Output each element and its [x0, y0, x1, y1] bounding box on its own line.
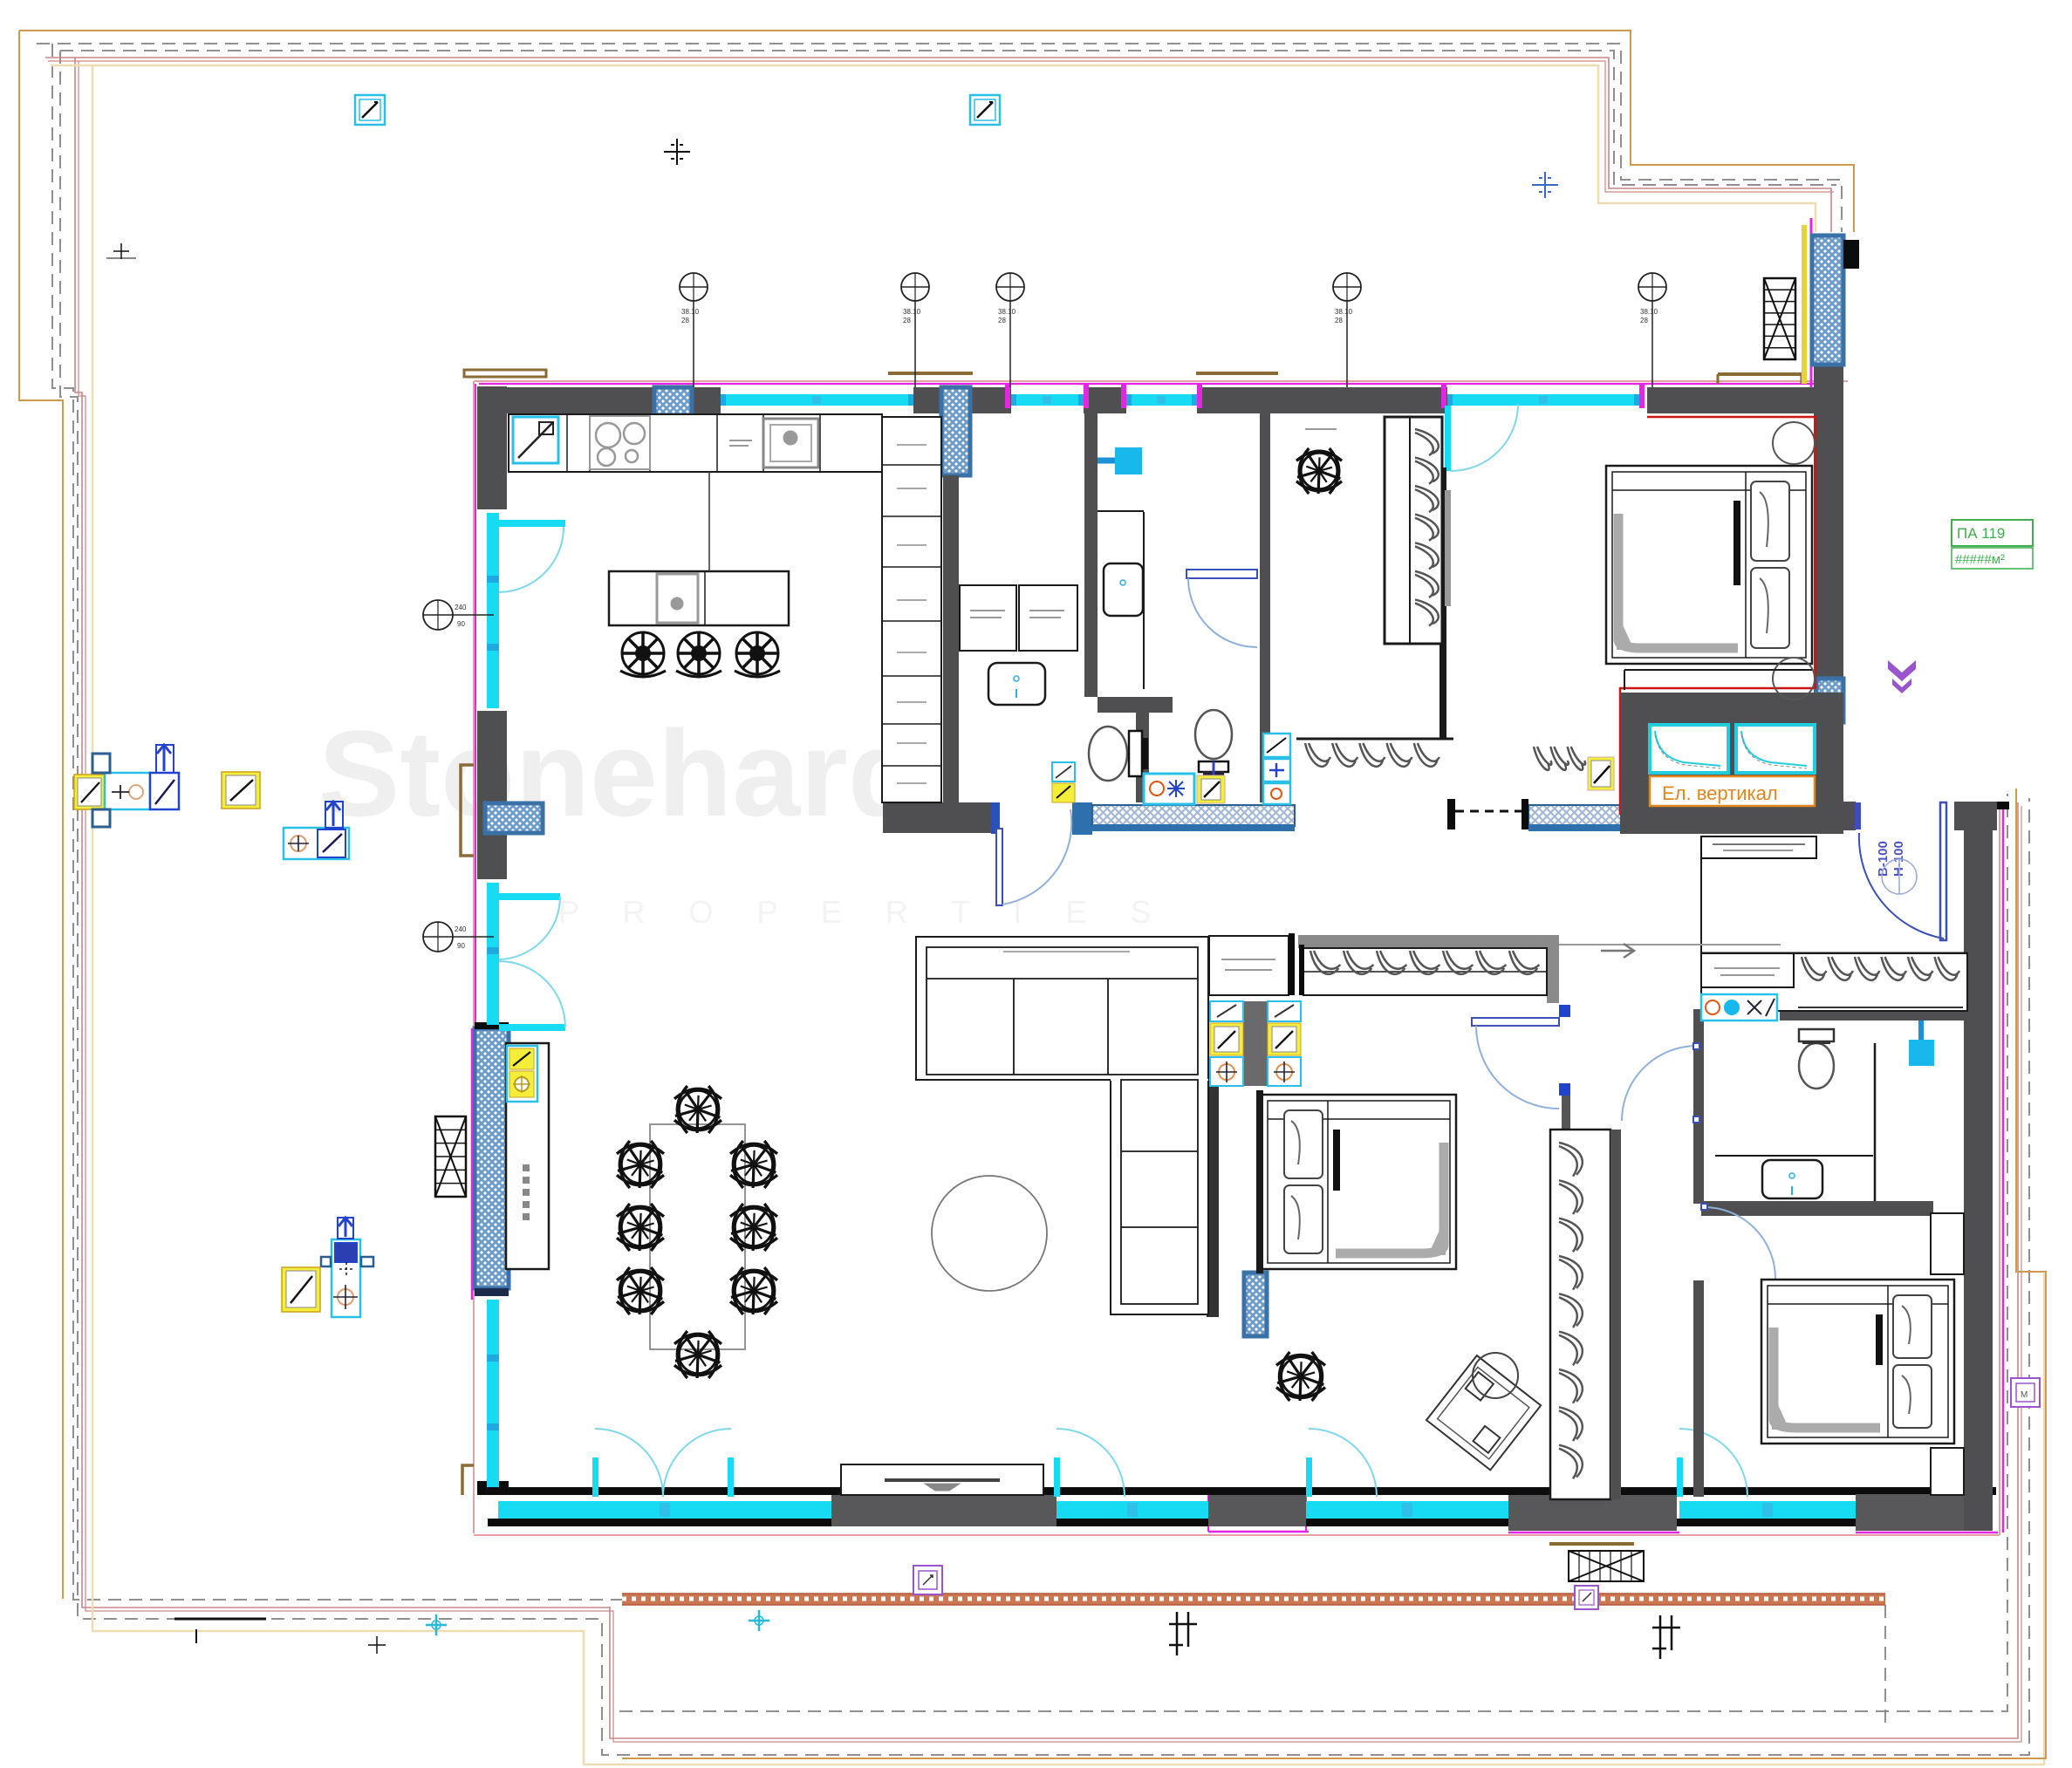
svg-text:38.10: 38.10 [903, 308, 921, 316]
svg-text:28: 28 [1335, 317, 1343, 324]
svg-text:M: M [2021, 1390, 2028, 1400]
svg-text:28: 28 [903, 317, 911, 324]
svg-text:P R O P E R T I E S: P R O P E R T I E S [558, 894, 1168, 930]
svg-text:90: 90 [457, 942, 465, 950]
svg-text:#####м²: #####м² [1955, 552, 2005, 567]
svg-text:38.10: 38.10 [681, 308, 700, 316]
svg-text:Stonehard: Stonehard [318, 705, 922, 842]
svg-text:38.10: 38.10 [998, 308, 1016, 316]
svg-text:90: 90 [457, 620, 465, 628]
svg-text:ПА 119: ПА 119 [1957, 525, 2005, 542]
svg-text:240: 240 [455, 604, 467, 611]
svg-text:28: 28 [681, 317, 689, 324]
svg-text:38.10: 38.10 [1335, 308, 1353, 316]
svg-text:38.10: 38.10 [1640, 308, 1658, 316]
svg-text:28: 28 [1640, 317, 1648, 324]
svg-text:240: 240 [455, 925, 467, 933]
svg-text:Ел. вертикал: Ел. вертикал [1662, 782, 1778, 804]
svg-text:28: 28 [998, 317, 1006, 324]
